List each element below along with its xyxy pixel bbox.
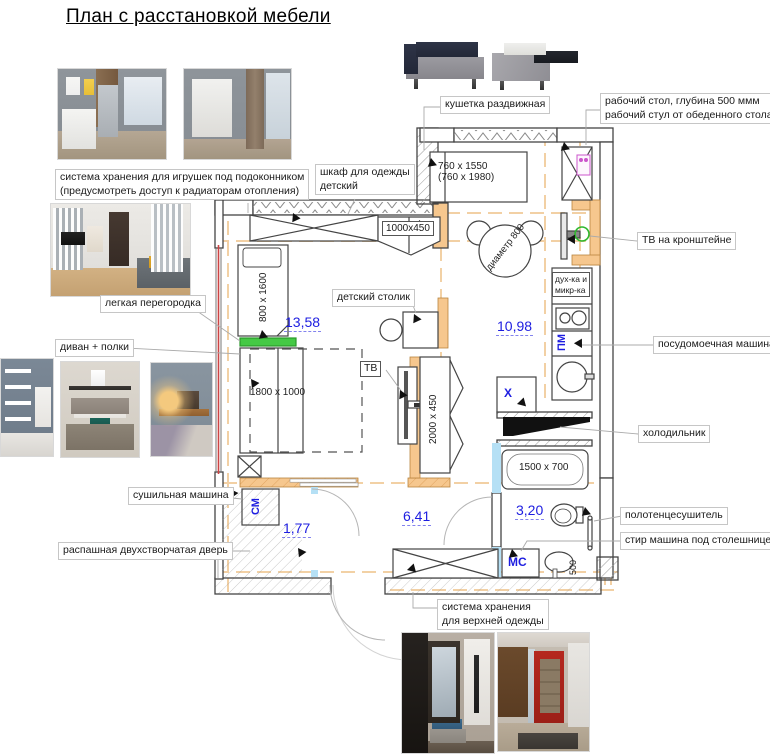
callout-dishwasher: посудомоечная машина	[653, 336, 770, 354]
light-partition-strip	[240, 338, 296, 346]
toilet	[551, 504, 583, 526]
mark-fridge: Х	[504, 386, 512, 400]
dim-daybed-line1: 760 x 1550	[438, 161, 494, 172]
towel-rail	[588, 516, 592, 550]
mark-dishwasher: ПМ	[556, 334, 568, 351]
area-bathroom: 3,20	[515, 502, 544, 520]
callout-tv-bracket: ТВ на кронштейне	[637, 232, 736, 250]
dim-bathtub: 1500 x 700	[519, 462, 569, 473]
coat-wardrobe	[393, 549, 498, 578]
callout-sofa-shelves: диван + полки	[55, 339, 134, 357]
callout-toy-storage-line1: система хранения для игрушек под подокон…	[60, 171, 304, 185]
callout-child-wardrobe-line2: детский	[320, 180, 410, 194]
photo-corner-shelves	[0, 358, 54, 457]
dim-washer-depth: 500	[568, 560, 578, 575]
callout-daybed: кушетка раздвижная	[440, 96, 550, 114]
area-closet: 1,77	[282, 520, 311, 538]
callout-washer-under-counter: стир машина под столешницей	[620, 532, 770, 550]
photo-bed-love	[60, 361, 140, 458]
tv-unit	[398, 367, 420, 444]
dim-daybed: 760 x 1550 (760 x 1980)	[438, 161, 494, 183]
area-kitchen-living: 10,98	[496, 318, 533, 336]
area-child-room: 13,58	[284, 314, 321, 332]
photo-hallway-storage-2	[497, 632, 590, 752]
callout-fridge: холодильник	[638, 425, 710, 443]
photo-corner-shelf-lamp	[150, 362, 213, 457]
dim-tv-cabinet: 2000 x 450	[428, 395, 439, 445]
mark-washer-bath: МС	[508, 555, 527, 569]
page-title: План с расстановкой мебели	[66, 6, 331, 28]
photo-living-room	[50, 203, 191, 297]
photo-daybed-product-2	[488, 40, 582, 96]
area-hallway: 6,41	[402, 508, 431, 526]
callout-toy-storage-line2: (предусмотреть доступ к радиаторам отопл…	[60, 185, 304, 199]
left-window	[216, 245, 221, 474]
dim-hall-unit: 1000x450	[382, 221, 434, 236]
callout-work-desk-line2: рабочий стул от обеденного стола	[605, 109, 770, 123]
callout-coat-storage-line2: для верхней одежды	[442, 615, 544, 629]
callout-coat-storage: система хранения для верхней одежды	[437, 599, 549, 630]
sofa-bed	[240, 348, 362, 453]
oven-micro-box: дух-ка и микр-ка	[552, 272, 590, 297]
callout-toy-storage: система хранения для игрушек под подокон…	[55, 169, 309, 200]
callout-towel-rail: полотенцесушитель	[620, 507, 728, 525]
child-table	[380, 312, 438, 348]
tv-cabinet	[420, 357, 463, 473]
callout-child-wardrobe-line1: шкаф для одежды	[320, 166, 410, 180]
callout-child-wardrobe: шкаф для одежды детский	[315, 164, 415, 195]
callout-work-desk-line1: рабочий стол, глубина 500 ммм	[605, 95, 770, 109]
callout-dryer: сушильная машина	[128, 487, 234, 505]
small-x-box	[238, 456, 261, 477]
photo-child-room-2	[183, 68, 292, 160]
callout-coat-storage-line1: система хранения	[442, 601, 544, 615]
oven-micro-line1: дух-ка и	[555, 274, 587, 285]
dim-daybed-line2: (760 x 1980)	[438, 172, 494, 183]
page: { "title": "План с расстановкой мебели",…	[0, 0, 770, 754]
callout-child-table: детский столик	[332, 289, 415, 307]
photo-child-room-1	[57, 68, 167, 160]
callout-work-desk: рабочий стол, глубина 500 ммм рабочий ст…	[600, 93, 770, 124]
socket	[577, 155, 590, 175]
dim-sofa-bed: 1800 x 1000	[250, 387, 305, 398]
fridge-box	[497, 377, 536, 412]
tv-mark: ТВ	[360, 361, 381, 377]
tv-on-bracket	[561, 213, 589, 259]
dim-child-bed: 800 x 1600	[258, 273, 269, 323]
counter-wedge	[503, 417, 590, 436]
photo-hallway-storage-1	[401, 632, 495, 754]
oven-micro-line2: микр-ка	[555, 285, 587, 296]
mark-washing-machine: СМ	[250, 498, 262, 515]
photo-daybed-product-1	[398, 34, 490, 94]
child-wardrobe	[250, 215, 378, 241]
callout-entrance-door: распашная двухстворчатая дверь	[58, 542, 233, 560]
callout-light-partition: легкая перегородка	[100, 295, 206, 313]
